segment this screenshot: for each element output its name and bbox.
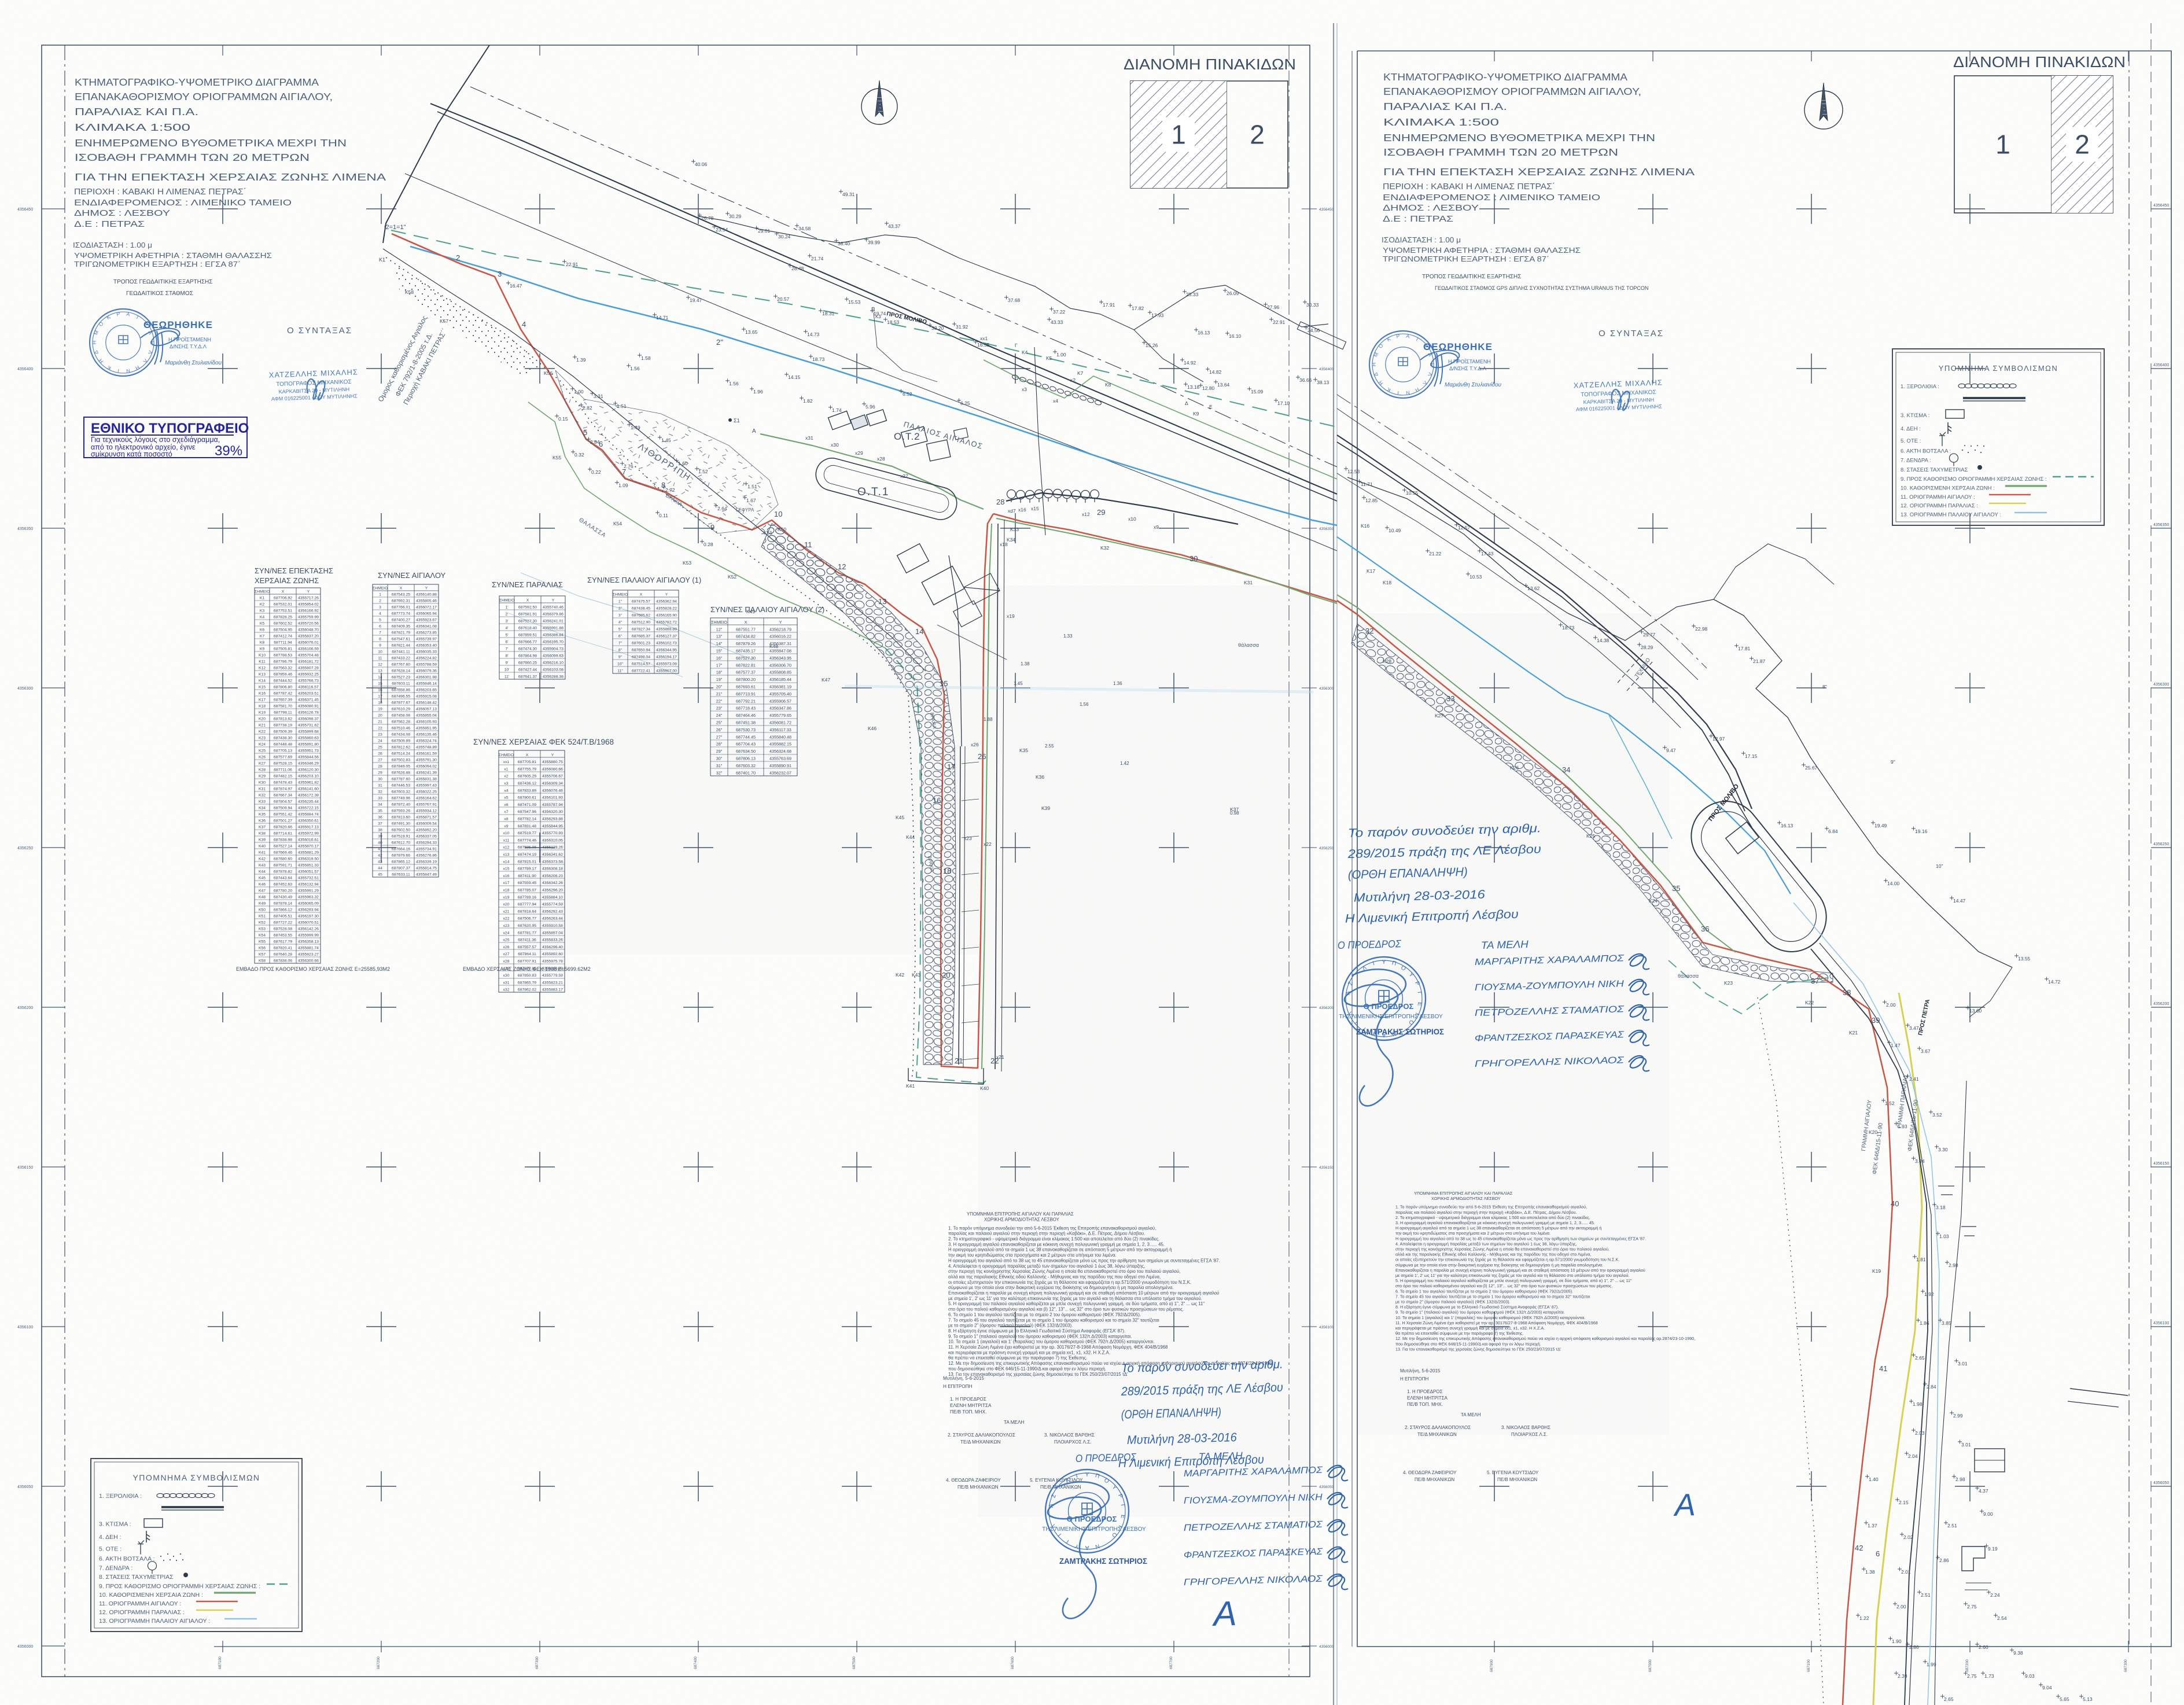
svg-text:4355734.91: 4355734.91 [416,848,437,852]
svg-text:Κ28: Κ28 [1383,658,1391,664]
svg-text:Μαριάνθη Στυλιανίδου: Μαριάνθη Στυλιανίδου [165,359,222,366]
svg-text:1.42: 1.42 [1120,761,1129,766]
svg-text:ΤΑ ΜΕΛΗ: ΤΑ ΜΕΛΗ [1481,938,1530,951]
svg-text:4356081.72: 4356081.72 [769,720,791,726]
svg-text:687658.86: 687658.86 [392,688,410,693]
svg-text:0.11: 0.11 [659,513,668,518]
svg-text:23": 23" [716,706,723,711]
svg-text:687641.37: 687641.37 [518,675,537,679]
svg-text:5': 5' [505,634,508,638]
svg-text:687409.35: 687409.35 [392,625,410,629]
svg-text:x9: x9 [1154,524,1159,530]
svg-text:4355890.91: 4355890.91 [769,763,791,768]
svg-text:687865.12: 687865.12 [392,860,410,864]
svg-text:687434.08: 687434.08 [392,733,410,737]
svg-text:28.48: 28.48 [791,266,804,271]
svg-text:Κ36: Κ36 [1036,774,1044,780]
svg-text:4355844.95: 4355844.95 [542,824,563,828]
svg-text:Κ43: Κ43 [912,972,920,978]
svg-text:14: 14 [915,627,923,636]
svg-text:1.90: 1.90 [1892,1638,1902,1644]
svg-text:4356301.98: 4356301.98 [416,676,437,680]
svg-text:687200: 687200 [1965,1659,1969,1672]
svg-text:1.33: 1.33 [1063,634,1073,639]
svg-text:Κ10: Κ10 [259,654,266,658]
svg-text:4356293.88: 4356293.88 [542,817,563,822]
svg-text:687806.80: 687806.80 [274,686,292,690]
svg-text:ΙΣΟΒΑΘΗ ΓΡΑΜΜΗ ΤΩΝ 20 ΜΕΤΡΩΝ: ΙΣΟΒΑΘΗ ΓΡΑΜΜΗ ΤΩΝ 20 ΜΕΤΡΩΝ [75,152,310,163]
svg-text:12. ΟΡΙΟΓΡΑΜΜΗ ΠΑΡΑΛΙΑΣ :: 12. ΟΡΙΟΓΡΑΜΜΗ ΠΑΡΑΛΙΑΣ : [99,1609,185,1616]
svg-text:Κ50: Κ50 [778,526,786,532]
svg-text:4": 4" [618,621,623,625]
svg-text:4355907.00: 4355907.00 [656,669,677,673]
svg-text:ΚΤΗΜΑΤΟΓΡΑΦΙΚΟ-ΥΨΟΜΕΤΡΙΚΟ ΔΙΑΓ: ΚΤΗΜΑΤΟΓΡΑΦΙΚΟ-ΥΨΟΜΕΤΡΙΚΟ ΔΙΑΓΡΑΜΜΑ [75,76,319,88]
svg-text:19.74: 19.74 [874,311,886,316]
svg-text:26: 26 [978,752,986,761]
svg-text:4356346.29: 4356346.29 [298,762,319,766]
svg-text:3': 3' [505,620,508,624]
svg-text:στο όριο του παλιού καθορισμέν: στο όριο του παλιού καθορισμένου αιγιαλο… [1395,1283,1612,1288]
svg-text:687807.37: 687807.37 [392,867,410,871]
svg-text:4356319.50: 4356319.50 [298,857,319,861]
svg-text:2.84: 2.84 [590,439,600,445]
svg-text:38.40: 38.40 [838,241,850,246]
svg-text:10. ΚΑΘΟΡΙΣΜΕΝΗ ΧΕΡΣΑΙΑ ΖΩΝΗ: 10. ΚΑΘΟΡΙΣΜΕΝΗ ΧΕΡΣΑΙΑ ΖΩΝΗ : [99,1592,203,1599]
svg-text:2": 2" [618,607,623,611]
svg-text:5.96: 5.96 [866,404,875,410]
svg-text:687617.79: 687617.79 [274,940,292,944]
svg-text:687711.94: 687711.94 [274,641,292,645]
svg-text:ΧΩΡΙΚΗΣ ΑΡΜΟΔΙΟΤΗΤΑΣ ΛΕΣΒΟΥ: ΧΩΡΙΚΗΣ ΑΡΜΟΔΙΟΤΗΤΑΣ ΛΕΣΒΟΥ [1431,1196,1501,1201]
svg-text:4355766.73: 4355766.73 [298,679,319,683]
svg-text:3. Η οριογραμμή αιγιαλού επαν: 3. Η οριογραμμή αιγιαλού επανακαθορίζετα… [948,1242,1165,1247]
svg-text:2: 2 [456,253,460,262]
svg-text:687602.52: 687602.52 [274,622,292,626]
svg-text:687100: 687100 [1807,1659,1811,1672]
svg-text:1. Η ΠΡΟΕΔΡΟΣ: 1. Η ΠΡΟΕΔΡΟΣ [950,1397,986,1402]
svg-text:687828.25: 687828.25 [274,616,292,620]
svg-text:4356324.68: 4356324.68 [769,749,791,754]
svg-text:Κ24: Κ24 [1649,898,1658,904]
svg-text:19.16: 19.16 [1915,828,1928,834]
svg-text:Μυτιλήνη, 5-6-2015: Μυτιλήνη, 5-6-2015 [943,1376,984,1381]
svg-text:6.25: 6.25 [960,400,970,406]
svg-text:1.60: 1.60 [678,461,688,466]
svg-text:29: 29 [1097,508,1105,517]
svg-text:4356300: 4356300 [1319,687,1334,691]
svg-text:4356076.01: 4356076.01 [298,641,319,645]
svg-text:4356341.62: 4356341.62 [542,853,563,857]
svg-text:2.02: 2.02 [1903,1534,1913,1540]
svg-text:3: 3 [498,270,502,278]
svg-text:36: 36 [1701,925,1709,933]
svg-text:687713.91: 687713.91 [736,691,756,697]
svg-text:687527.30: 687527.30 [736,656,756,661]
svg-text:8: 8 [379,638,381,642]
svg-text:3. Η οριογραμμή αιγιαλού επαν: 3. Η οριογραμμή αιγιαλού επανακαθορίζετα… [1395,1220,1595,1225]
svg-text:4355904.73: 4355904.73 [543,647,564,651]
svg-text:Κ7: Κ7 [1077,370,1084,376]
svg-text:x6: x6 [504,803,508,807]
svg-text:Κ32: Κ32 [259,794,266,798]
svg-text:14.47: 14.47 [1953,898,1966,904]
svg-text:Κ7: Κ7 [260,635,265,639]
svg-text:Υ: Υ [1085,1472,1089,1478]
svg-text:x11: x11 [503,838,510,842]
svg-text:ΓΙΑ ΤΗΝ ΕΠΕΚΤΑΣΗ ΧΕΡΣΑΙΑΣ ΖΩΝΗ: ΓΙΑ ΤΗΝ ΕΠΕΚΤΑΣΗ ΧΕΡΣΑΙΑΣ ΖΩΝΗΣ ΛΙΜΕΝΑ [75,171,386,183]
svg-text:687528.15: 687528.15 [274,762,292,766]
svg-text:4356224.82: 4356224.82 [416,657,437,661]
svg-text:4355705.40: 4355705.40 [769,691,791,697]
svg-text:34: 34 [378,803,382,807]
svg-text:687547.61: 687547.61 [392,638,410,642]
svg-text:687744.45: 687744.45 [736,734,756,739]
svg-text:687501.27: 687501.27 [274,819,292,823]
svg-text:x4: x4 [504,789,508,793]
svg-text:Υ: Υ [307,590,310,594]
svg-text:4355767.91: 4355767.91 [416,803,437,807]
svg-text:687822.81: 687822.81 [736,662,756,668]
svg-text:7. Το σημείο 45 του αιγιαλού: 7. Το σημείο 45 του αιγιαλού ταυτίζεται … [1395,1294,1590,1299]
svg-text:ΤΑ ΜΕΛΗ: ΤΑ ΜΕΛΗ [1004,1420,1024,1425]
svg-text:ΣΗΜΕΙΟ: ΣΗΜΕΙΟ [613,593,628,597]
svg-text:x32: x32 [503,988,510,992]
svg-text:ΕΝΗΜΕΡΩΜΕΝΟ ΒΥΘΟΜΕΤΡΙΚΑ ΜΕΧΡΙ: ΕΝΗΜΕΡΩΜΕΝΟ ΒΥΘΟΜΕΤΡΙΚΑ ΜΕΧΡΙ ΤΗΝ [1383,132,1655,143]
svg-text:4355732.51: 4355732.51 [298,877,319,881]
svg-text:687434.82: 687434.82 [736,634,756,639]
svg-text:Η ΕΠΙΤΡΟΠΗ: Η ΕΠΙΤΡΟΠΗ [1400,1376,1429,1382]
svg-text:687879.26: 687879.26 [736,641,756,646]
svg-text:ΣΗΜΕΙΟ: ΣΗΜΕΙΟ [499,753,514,757]
svg-text:20: 20 [378,714,382,718]
svg-text:ΣΥΝ/ΝΕΣ ΠΑΡΑΛΙΑΣ: ΣΥΝ/ΝΕΣ ΠΑΡΑΛΙΑΣ [492,580,563,589]
svg-text:687821.44: 687821.44 [392,644,410,648]
svg-text:30: 30 [378,778,382,782]
svg-text:2. ΣΤΑΥΡΟΣ ΔΑΛΙΑΚΟΠΟΥΛΟΣ: 2. ΣΤΑΥΡΟΣ ΔΑΛΙΑΚΟΠΟΥΛΟΣ [948,1433,1015,1438]
svg-text:687786.79: 687786.79 [274,660,292,664]
svg-text:4355972.99: 4355972.99 [298,832,319,836]
svg-text:4356165.90: 4356165.90 [656,614,677,618]
svg-text:24: 24 [378,739,382,743]
svg-text:2.72: 2.72 [665,487,675,493]
svg-text:2.76: 2.76 [624,463,634,469]
svg-text:13. ΟΡΙΟΓΡΑΜΜΗ ΠΑΛΑΙΟΥ ΑΙΓΙΑΛ: 13. ΟΡΙΟΓΡΑΜΜΗ ΠΑΛΑΙΟΥ ΑΙΓΙΑΛΟΥ : [99,1618,210,1625]
svg-text:4356065.94: 4356065.94 [416,612,437,616]
svg-text:4356127.37: 4356127.37 [656,635,677,639]
svg-text:Κ31: Κ31 [259,787,266,791]
svg-text:ΠΕ/Β ΜΗΧΑΝΙΚΩΝ: ΠΕ/Β ΜΗΧΑΝΙΚΩΝ [1497,1477,1537,1482]
svg-text:12": 12" [716,627,723,632]
svg-text:6": 6" [618,635,623,639]
svg-text:4356100: 4356100 [1319,1325,1334,1330]
svg-text:3.52: 3.52 [1932,1112,1942,1118]
svg-text:Κ57: Κ57 [440,318,448,324]
svg-text:4355840.48: 4355840.48 [769,734,791,739]
svg-text:15.09: 15.09 [1251,389,1264,395]
svg-text:6. ΑΚΤΗ ΒΟΤΣΑΛΑ :: 6. ΑΚΤΗ ΒΟΤΣΑΛΑ : [1901,448,1951,454]
svg-text:1.86: 1.86 [1920,1320,1929,1326]
svg-text:ΔΗΜΟΣ : ΛΕΣΒΟΥ: ΔΗΜΟΣ : ΛΕΣΒΟΥ [1383,203,1479,213]
svg-text:33: 33 [1446,694,1454,703]
svg-text:41: 41 [1879,1364,1887,1373]
svg-text:11. ΟΡΙΟΓΡΑΜΜΗ ΑΙΓΙΑΛΟΥ :: 11. ΟΡΙΟΓΡΑΜΜΗ ΑΙΓΙΑΛΟΥ : [1901,494,1975,500]
svg-text:4356263.44: 4356263.44 [542,917,563,921]
svg-text:4356308.18: 4356308.18 [542,867,563,871]
svg-text:9': 9' [505,661,508,665]
svg-text:ΣΥΝ/ΝΕΣ ΑΙΓΙΑΛΟΥ: ΣΥΝ/ΝΕΣ ΑΙΓΙΑΛΟΥ [378,571,446,580]
svg-text:687787.60: 687787.60 [392,778,410,782]
svg-text:3.30: 3.30 [1938,1147,1948,1152]
svg-text:αλλά και της παραλιακής Εθνική: αλλά και της παραλιακής Εθνικής οδού Καλ… [1395,1252,1592,1257]
svg-text:687532.01: 687532.01 [274,603,292,607]
svg-text:x19: x19 [1007,613,1015,619]
svg-text:4356216.10: 4356216.10 [543,661,564,665]
svg-text:687714.61: 687714.61 [274,832,292,836]
svg-text:4356166.92: 4356166.92 [298,609,319,613]
svg-text:οι οποίες εξυπηρετούν την επικ: οι οποίες εξυπηρετούν την επικοινωνία τη… [1395,1257,1619,1262]
svg-text:687878.14: 687878.14 [274,902,292,906]
svg-text:3.67: 3.67 [1921,1048,1931,1054]
svg-text:ΥΠΟΜΝΗΜΑ ΕΠΙΤΡΟΠΗΣ ΑΙΓΙΑΛΟΥ Κ: ΥΠΟΜΝΗΜΑ ΕΠΙΤΡΟΠΗΣ ΑΙΓΙΑΛΟΥ ΚΑΙ ΠΑΡΑΛΙΑΣ [1414,1191,1513,1196]
svg-text:8. ΣΤΑΣΕΙΣ ΤΑΧΥΜΕΤΡΙΑΣ: 8. ΣΤΑΣΕΙΣ ΤΑΧΥΜΕΤΡΙΑΣ [1901,467,1968,473]
svg-text:687859.46: 687859.46 [274,673,292,677]
svg-text:ΠΕΡΙΟΧΗ : ΚΑΒΑΚΙ Η ΛΙΜΕΝΑΣ ΠΕΤ: ΠΕΡΙΟΧΗ : ΚΑΒΑΚΙ Η ΛΙΜΕΝΑΣ ΠΕΤΡΑΣ΄ [74,187,246,197]
svg-text:1.58: 1.58 [641,355,651,361]
svg-text:687451.38: 687451.38 [736,720,756,726]
svg-text:687559.45: 687559.45 [518,881,536,885]
svg-text:34: 34 [1562,765,1570,774]
svg-text:4355892.20: 4355892.20 [416,828,437,833]
svg-text:Κ27: Κ27 [1435,713,1443,719]
svg-text:2. Το κτηματογραφικό - υψομετ: 2. Το κτηματογραφικό - υψομετρικό διάγρα… [948,1236,1159,1242]
svg-text:x20: x20 [503,903,510,907]
svg-text:687603.32: 687603.32 [392,790,410,794]
svg-text:4355991.29: 4355991.29 [298,889,319,893]
svg-text:4356050: 4356050 [1319,1485,1334,1489]
svg-text:687401.70: 687401.70 [736,770,756,775]
svg-text:687603.32: 687603.32 [736,763,756,768]
svg-text:687640.28: 687640.28 [274,953,292,957]
svg-text:7: 7 [379,631,381,635]
svg-text:x17: x17 [503,881,510,885]
svg-text:4356218.79: 4356218.79 [769,627,791,632]
svg-text:2.00: 2.00 [1886,1002,1896,1008]
svg-text:Κ4: Κ4 [260,616,265,620]
svg-text:687773.74: 687773.74 [392,612,410,616]
svg-text:4356172.38: 4356172.38 [298,794,319,798]
svg-text:687506.77: 687506.77 [518,917,536,921]
svg-text:Α: Α [1085,1544,1089,1551]
svg-text:687722.41: 687722.41 [632,669,650,673]
svg-text:25: 25 [378,746,382,750]
svg-text:687831.48: 687831.48 [518,824,536,828]
svg-text:12. Με την δημοσίευση της επικ: 12. Με την δημοσίευση της επικυρωτικής Α… [1395,1336,1695,1341]
svg-text:x21: x21 [503,909,510,914]
svg-text:45: 45 [378,873,382,877]
svg-text:4355923.67: 4355923.67 [416,618,437,623]
svg-text:Κ40: Κ40 [259,845,266,849]
svg-text:687500: 687500 [852,1656,856,1669]
svg-text:Κ47: Κ47 [259,889,266,893]
svg-text:37.68: 37.68 [1008,297,1021,303]
svg-text:Χ: Χ [282,590,285,594]
svg-text:687482.15: 687482.15 [274,775,292,779]
svg-text:13. ΟΡΙΟΓΡΑΜΜΗ ΠΑΛΑΙΟΥ ΑΙΓΙΑΛ: 13. ΟΡΙΟΓΡΑΜΜΗ ΠΑΛΑΙΟΥ ΑΙΓΙΑΛΟΥ : [1901,512,2001,518]
svg-text:4355807.28: 4355807.28 [298,666,319,671]
svg-text:4356358.13: 4356358.13 [298,940,319,944]
svg-text:9: 9 [710,523,715,532]
svg-text:με σημεία 1', 2' ως 11' για τη: με σημεία 1', 2' ως 11' για την καλύτερη… [1395,1273,1629,1278]
svg-text:x27: x27 [900,473,908,479]
svg-text:687782.14: 687782.14 [518,817,536,822]
svg-text:687474.30: 687474.30 [518,647,537,651]
svg-text:ΣΗΜΕΙΟ: ΣΗΜΕΙΟ [711,620,727,625]
svg-text:22.91: 22.91 [1273,319,1286,325]
svg-text:11": 11" [617,669,623,673]
svg-text:49.31: 49.31 [842,192,855,197]
svg-text:5. Η οριογραμμή του παλαιού α: 5. Η οριογραμμή του παλαιού αιγιαλού καθ… [1395,1278,1632,1283]
svg-text:687577.69: 687577.69 [274,756,292,760]
svg-text:Κ55: Κ55 [553,455,561,461]
svg-text:4355774.59: 4355774.59 [542,903,563,907]
svg-text:30": 30" [716,756,723,761]
svg-text:1.56: 1.56 [729,381,739,386]
svg-text:687448.48: 687448.48 [274,743,292,747]
svg-text:687446.53: 687446.53 [392,784,410,788]
svg-text:16.47: 16.47 [510,283,522,289]
svg-text:4355787.94: 4355787.94 [542,803,563,807]
svg-text:687514.57: 687514.57 [632,662,650,666]
svg-text:Κ16: Κ16 [1361,523,1369,529]
svg-text:4356161.59: 4356161.59 [416,752,437,756]
svg-text:5. ΟΤΕ :: 5. ΟΤΕ : [1901,438,1921,444]
svg-text:4356241.39: 4356241.39 [416,771,437,775]
svg-text:687443.64: 687443.64 [274,877,292,881]
svg-text:10. ΚΑΘΟΡΙΣΜΕΝΗ ΧΕΡΣΑΙΑ ΖΩΝΗ: 10. ΚΑΘΟΡΙΣΜΕΝΗ ΧΕΡΣΑΙΑ ΖΩΝΗ : [1901,485,1995,492]
svg-text:Κ58: Κ58 [259,959,266,963]
svg-text:4356076.46: 4356076.46 [542,789,563,793]
svg-text:ΤΡΟΠΟΣ ΓΕΩΔΑΙΤΙΚΗΣ ΕΞΑΡΤΗΣΗΣ: ΤΡΟΠΟΣ ΓΕΩΔΑΙΤΙΚΗΣ ΕΞΑΡΤΗΣΗΣ [113,279,212,285]
svg-text:12. ΟΡΙΟΓΡΑΜΜΗ ΠΑΡΑΛΙΑΣ :: 12. ΟΡΙΟΓΡΑΜΜΗ ΠΑΡΑΛΙΑΣ : [1901,503,1978,509]
svg-text:4356387.31: 4356387.31 [769,641,791,646]
svg-text:687430.49: 687430.49 [274,896,292,900]
svg-text:4355833.26: 4355833.26 [542,938,563,942]
svg-text:2.39: 2.39 [1898,1673,1907,1679]
svg-text:687806.13: 687806.13 [736,756,756,761]
svg-text:687577.37: 687577.37 [736,670,756,675]
svg-text:5.13: 5.13 [2083,1696,2093,1702]
svg-text:27: 27 [378,758,382,763]
svg-text:4356051.57: 4356051.57 [298,870,319,874]
svg-text:x8: x8 [504,817,508,822]
svg-text:x29: x29 [855,450,863,456]
svg-text:1.56: 1.56 [630,366,640,371]
svg-text:9. ΠΡΟΣ ΚΑΘΟΡΙΣΜΟ ΟΡΙΟΓΡΑΜΜΗ: 9. ΠΡΟΣ ΚΑΘΟΡΙΣΜΟ ΟΡΙΟΓΡΑΜΜΗ ΧΕΡΣΑΙΑΣ ΖΩ… [1901,476,2046,483]
svg-text:ΕΜΒΑΔΟ ΠΡΟΣ ΚΑΘΟΡΙΣΜΟ ΧΕΡΣΑΙΑΣ: ΕΜΒΑΔΟ ΠΡΟΣ ΚΑΘΟΡΙΣΜΟ ΧΕΡΣΑΙΑΣ ΖΩΝΗΣ Ε=2… [236,966,390,972]
svg-text:687200: 687200 [377,1656,381,1669]
svg-text:ΠΕ/Β ΜΗΧΑΝΙΚΩΝ: ΠΕ/Β ΜΗΧΑΝΙΚΩΝ [957,1485,999,1490]
svg-text:Κ9: Κ9 [260,647,265,651]
svg-text:687436.12: 687436.12 [518,782,536,786]
svg-text:32": 32" [716,770,723,775]
svg-text:4355880.75: 4355880.75 [542,760,563,764]
svg-text:687620.95: 687620.95 [518,924,536,928]
svg-text:Κ1: Κ1 [379,257,385,263]
svg-text:4355823.27: 4355823.27 [298,953,319,957]
svg-text:687498.04: 687498.04 [632,656,650,660]
svg-text:4355847.08: 4355847.08 [769,649,791,654]
svg-text:4356373.58: 4356373.58 [542,860,563,864]
svg-text:4356000: 4356000 [17,1645,33,1649]
svg-text:4356379.86: 4356379.86 [543,613,564,617]
svg-text:28": 28" [716,742,723,747]
svg-text:687600: 687600 [1011,1656,1015,1669]
svg-text:31: 31 [378,784,382,788]
svg-text:ΤΗΣ ΛΙΜΕΝΙΚΗΣ ΕΠΙΤΡΟΠΗΣ ΛΕΣΒΟΥ: ΤΗΣ ΛΙΜΕΝΙΚΗΣ ΕΠΙΤΡΟΠΗΣ ΛΕΣΒΟΥ [1042,1526,1146,1533]
svg-text:2.03: 2.03 [1915,1430,1925,1436]
svg-text:13.55: 13.55 [2018,956,2031,962]
svg-text:1.49: 1.49 [631,425,640,430]
svg-text:687502.83: 687502.83 [392,758,410,763]
svg-text:13": 13" [716,634,723,639]
svg-text:Κ38: Κ38 [259,832,266,836]
svg-text:4356050: 4356050 [2153,1481,2169,1485]
svg-text:Κ27: Κ27 [259,762,266,766]
svg-text:6. Το σημείο 1 του αιγιαλού τ: 6. Το σημείο 1 του αιγιαλού ταυτίζεται μ… [948,1312,1141,1317]
svg-text:4355857.04: 4355857.04 [542,931,563,935]
svg-text:687818.64: 687818.64 [518,909,536,914]
svg-text:4. ΔΕΗ :: 4. ΔΕΗ : [99,1534,121,1541]
svg-text:12.57: 12.57 [1458,525,1471,531]
svg-text:4356347.86: 4356347.86 [769,706,791,711]
svg-text:687738.19: 687738.19 [274,724,292,728]
svg-text:ΤΗΣ ΛΙΜΕΝΙΚΗΣ ΕΠΙΤΡΟΠΗΣ ΛΕΣΒΟΥ: ΤΗΣ ΛΙΜΕΝΙΚΗΣ ΕΠΙΤΡΟΠΗΣ ΛΕΣΒΟΥ [1339,1014,1443,1020]
svg-text:2.01: 2.01 [1901,1569,1911,1575]
svg-text:687804.57: 687804.57 [274,800,292,804]
svg-text:10.53: 10.53 [1469,574,1482,580]
svg-text:687100: 687100 [218,1656,222,1669]
svg-text:39: 39 [1872,1016,1880,1025]
svg-text:687749.96: 687749.96 [392,797,410,801]
svg-text:687865.79: 687865.79 [518,981,536,985]
svg-text:9.19: 9.19 [1988,1546,1998,1552]
svg-text:687471.09: 687471.09 [518,803,536,807]
svg-text:25.67: 25.67 [1805,765,1818,771]
svg-text:687509.39: 687509.39 [274,730,292,734]
svg-text:42: 42 [378,854,382,858]
svg-text:Η: Η [1371,363,1377,367]
svg-text:x23: x23 [503,924,510,928]
svg-text:13.60: 13.60 [1969,1008,1982,1014]
svg-text:1.56: 1.56 [1080,702,1089,707]
svg-text:1.96: 1.96 [753,389,763,395]
svg-text:9: 9 [379,644,381,648]
svg-text:687441.11: 687441.11 [392,650,410,654]
svg-text:4355855.04: 4355855.04 [416,714,437,718]
svg-text:x31: x31 [805,435,813,441]
svg-text:4356400: 4356400 [1319,367,1334,371]
svg-text:Κ51: Κ51 [764,530,772,536]
svg-text:x22: x22 [503,917,510,921]
svg-text:4356150: 4356150 [1319,1166,1334,1170]
svg-text:687603.11: 687603.11 [392,682,410,686]
svg-text:687792.21: 687792.21 [736,698,756,704]
svg-text:ΖΑΜΤΡΑΚΗΣ ΣΩΤΗΡΙΟΣ: ΖΑΜΤΡΑΚΗΣ ΣΩΤΗΡΙΟΣ [1356,1028,1444,1036]
svg-text:Κ31: Κ31 [1244,580,1253,585]
svg-text:31.92: 31.92 [956,324,968,330]
svg-text:687633.11: 687633.11 [392,873,410,877]
svg-text:687878.82: 687878.82 [274,870,292,874]
